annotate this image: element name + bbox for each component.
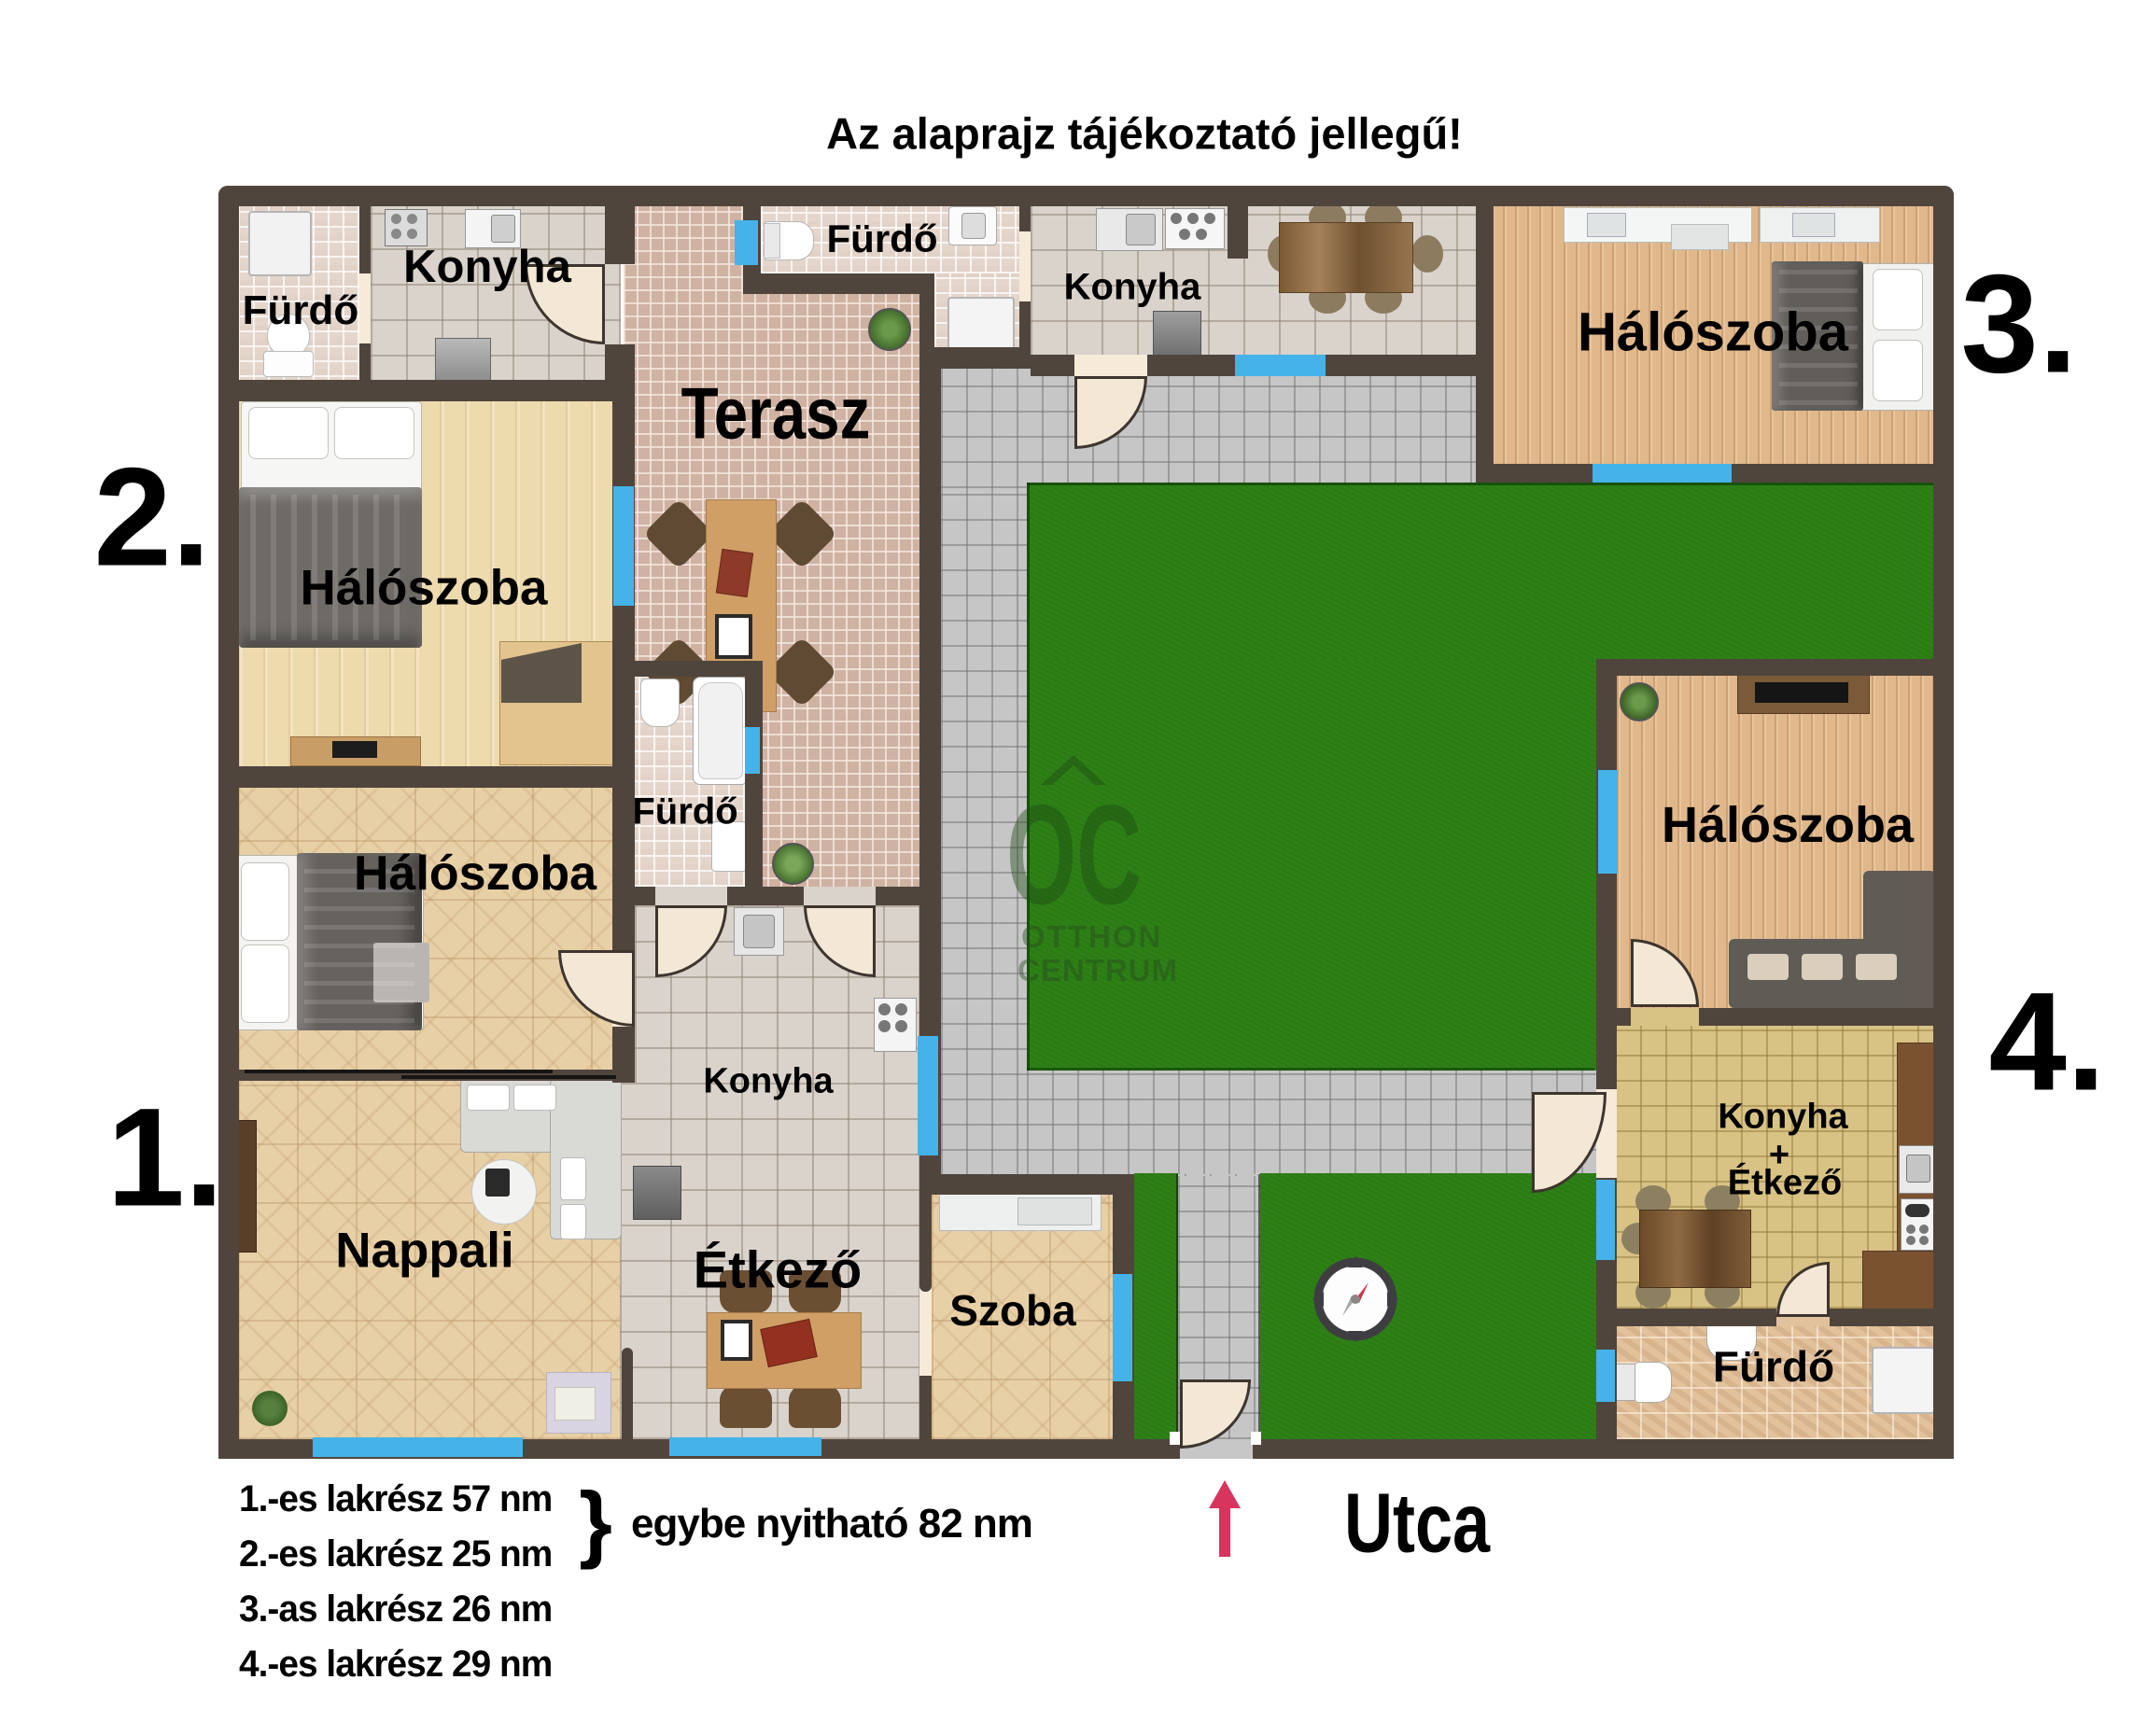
svg-text:OTTHON: OTTHON <box>1021 919 1162 954</box>
svg-text:CENTRUM: CENTRUM <box>1017 953 1178 987</box>
svg-text:OC: OC <box>1006 776 1142 934</box>
